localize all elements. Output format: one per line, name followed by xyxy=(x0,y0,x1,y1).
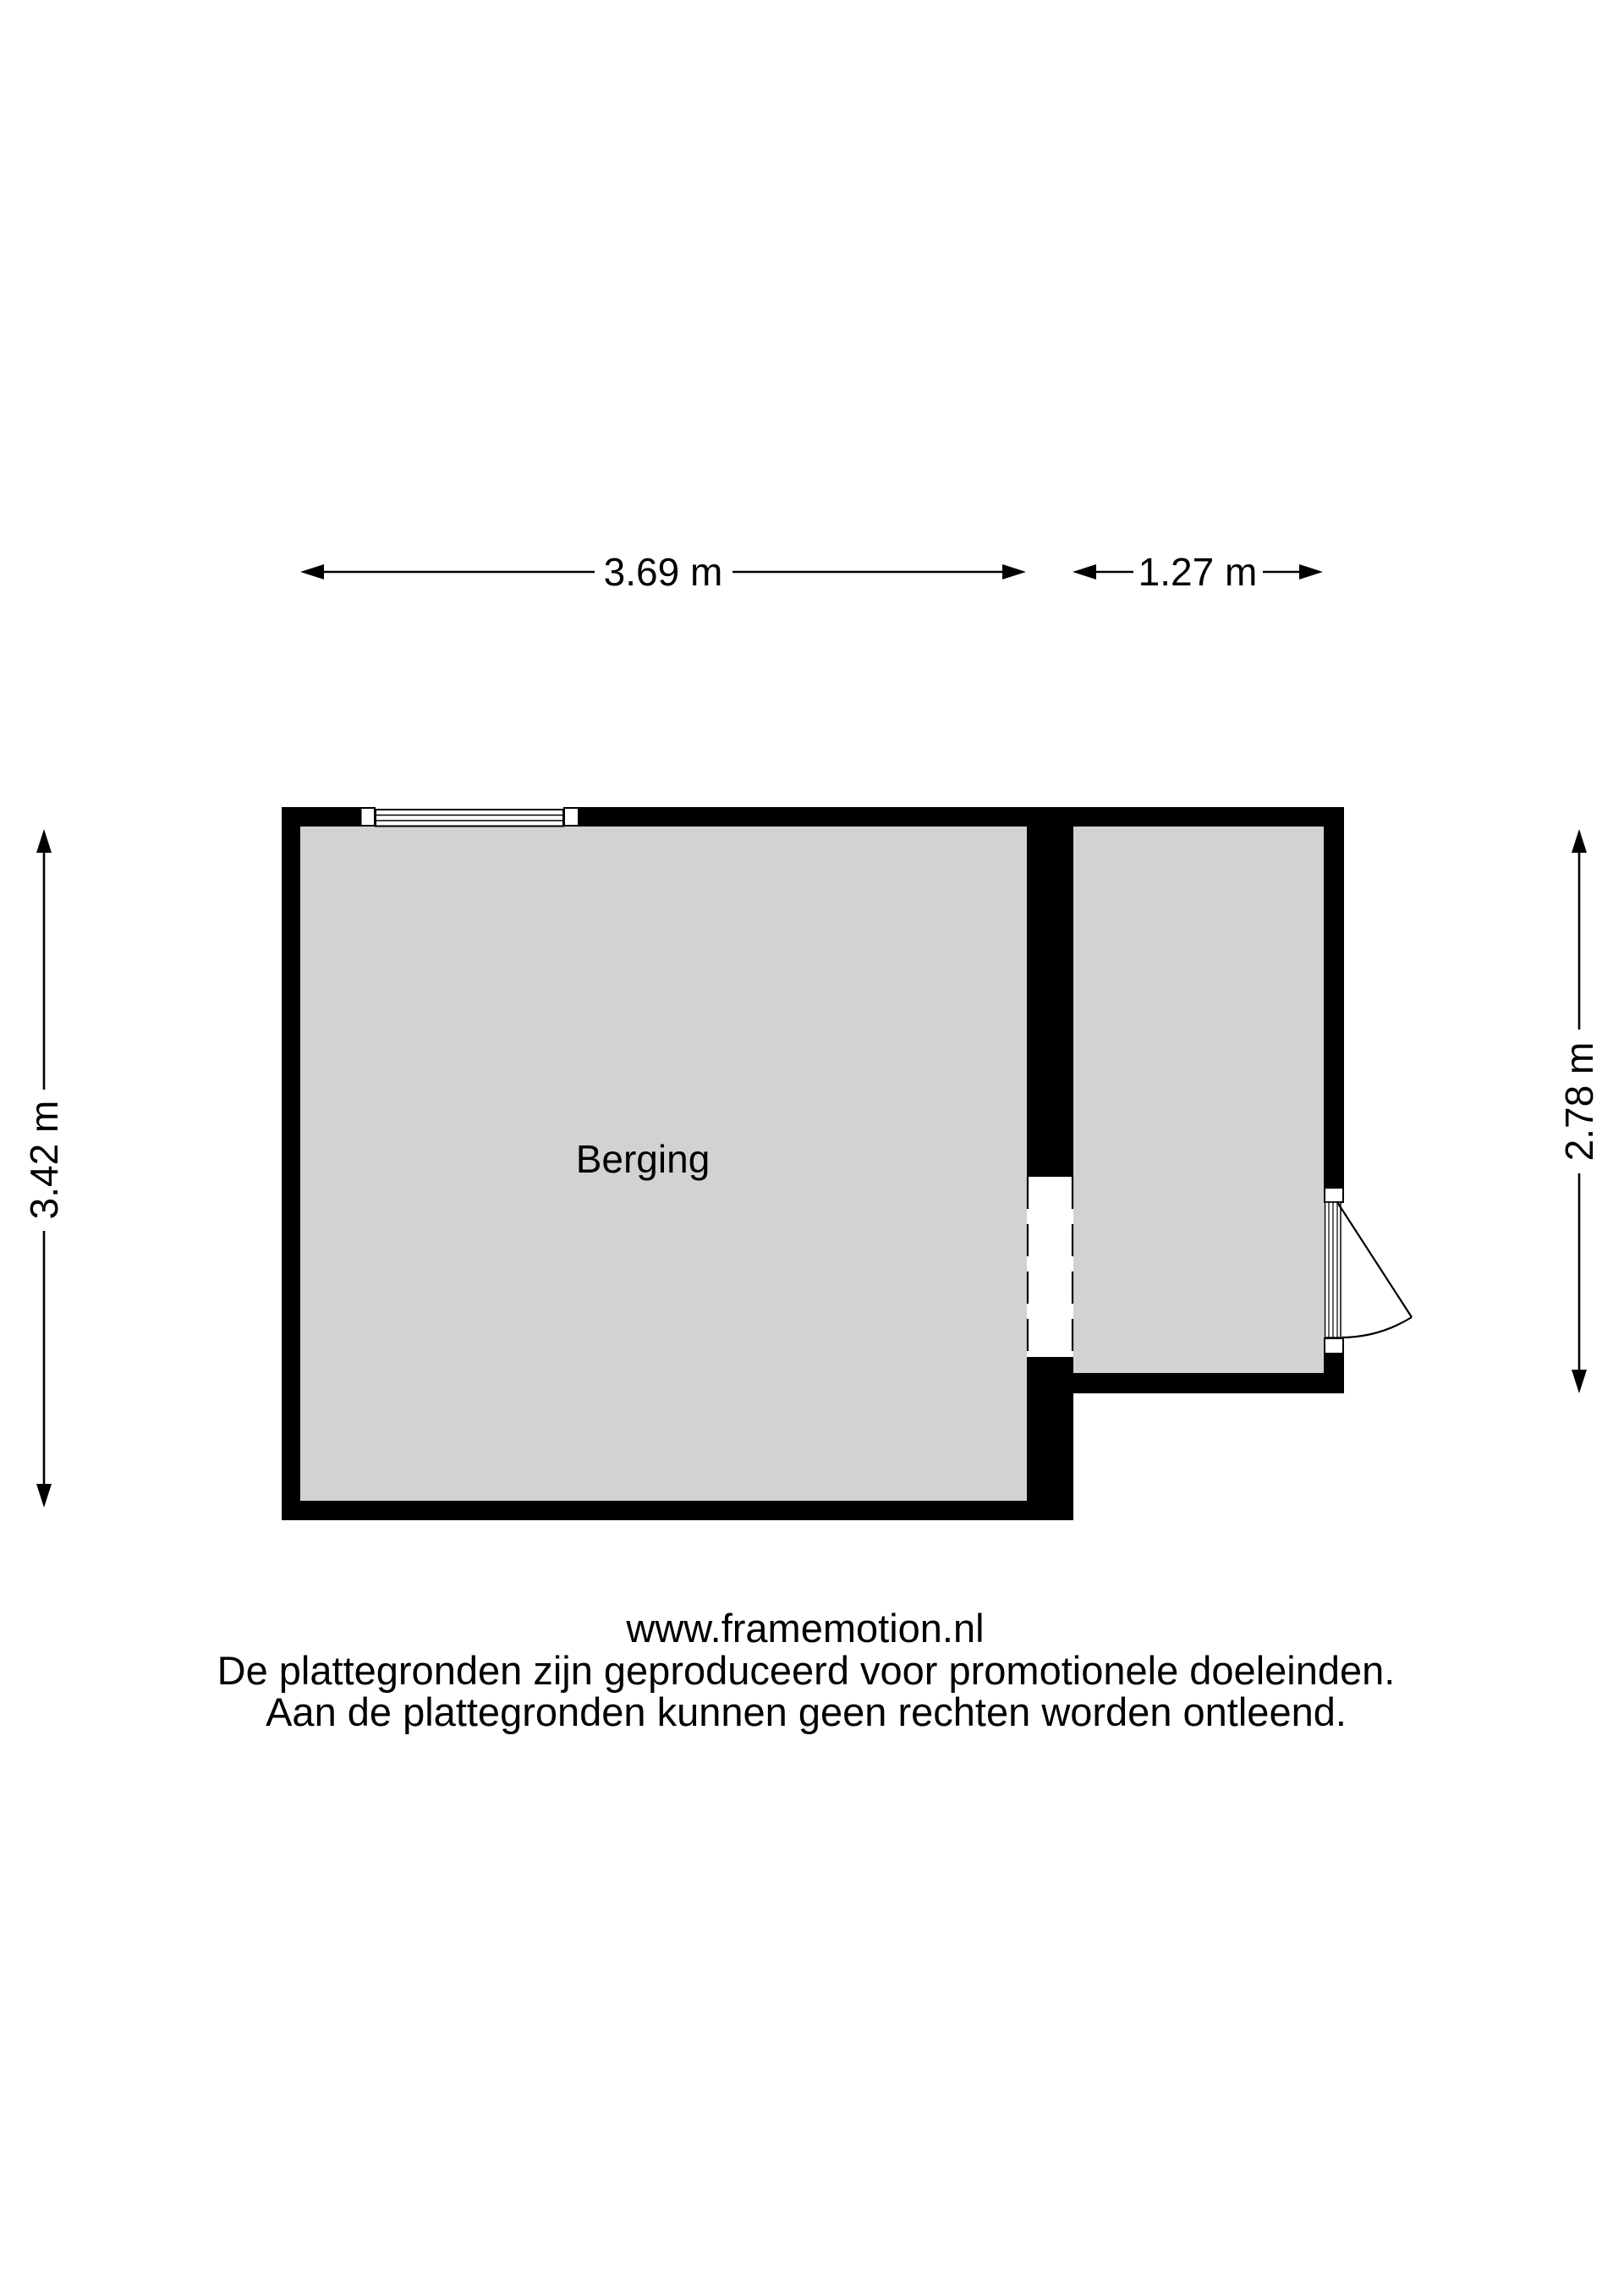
svg-text:De plattegronden zijn geproduc: De plattegronden zijn geproduceerd voor … xyxy=(217,1648,1396,1693)
svg-text:1.27 m: 1.27 m xyxy=(1138,550,1258,594)
svg-text:2.78 m: 2.78 m xyxy=(1557,1042,1601,1162)
svg-text:Aan de plattegronden kunnen ge: Aan de plattegronden kunnen geen rechten… xyxy=(266,1689,1347,1734)
svg-text:www.framemotion.nl: www.framemotion.nl xyxy=(625,1606,984,1651)
svg-text:3.42 m: 3.42 m xyxy=(22,1101,66,1220)
svg-text:Berging: Berging xyxy=(576,1137,710,1181)
svg-text:3.69 m: 3.69 m xyxy=(604,550,723,594)
